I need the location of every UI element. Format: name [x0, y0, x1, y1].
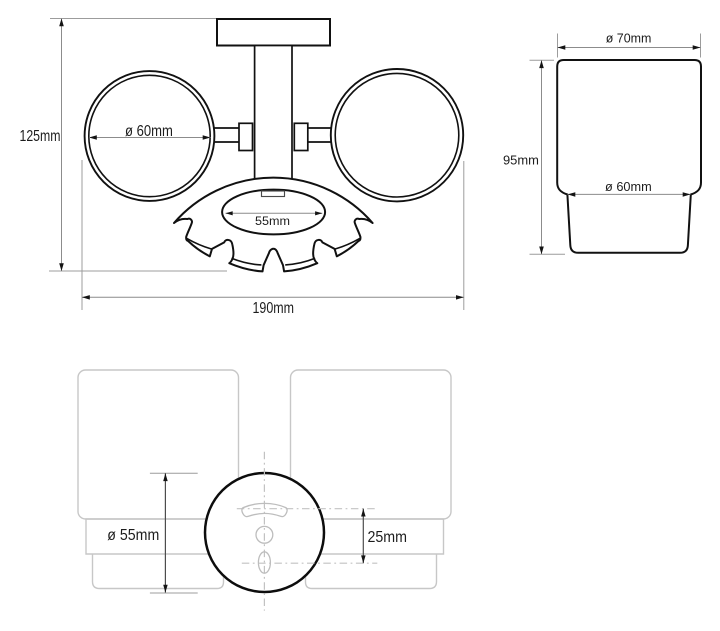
- svg-text:ø 60mm: ø 60mm: [125, 123, 173, 140]
- svg-text:ø 60mm: ø 60mm: [605, 179, 652, 194]
- svg-text:ø 70mm: ø 70mm: [606, 30, 652, 45]
- svg-text:125mm: 125mm: [20, 128, 61, 145]
- svg-text:190mm: 190mm: [253, 300, 295, 317]
- svg-text:95mm: 95mm: [503, 152, 539, 167]
- svg-text:25mm: 25mm: [368, 529, 408, 546]
- svg-text:ø 55mm: ø 55mm: [107, 527, 159, 544]
- svg-text:55mm: 55mm: [255, 214, 290, 228]
